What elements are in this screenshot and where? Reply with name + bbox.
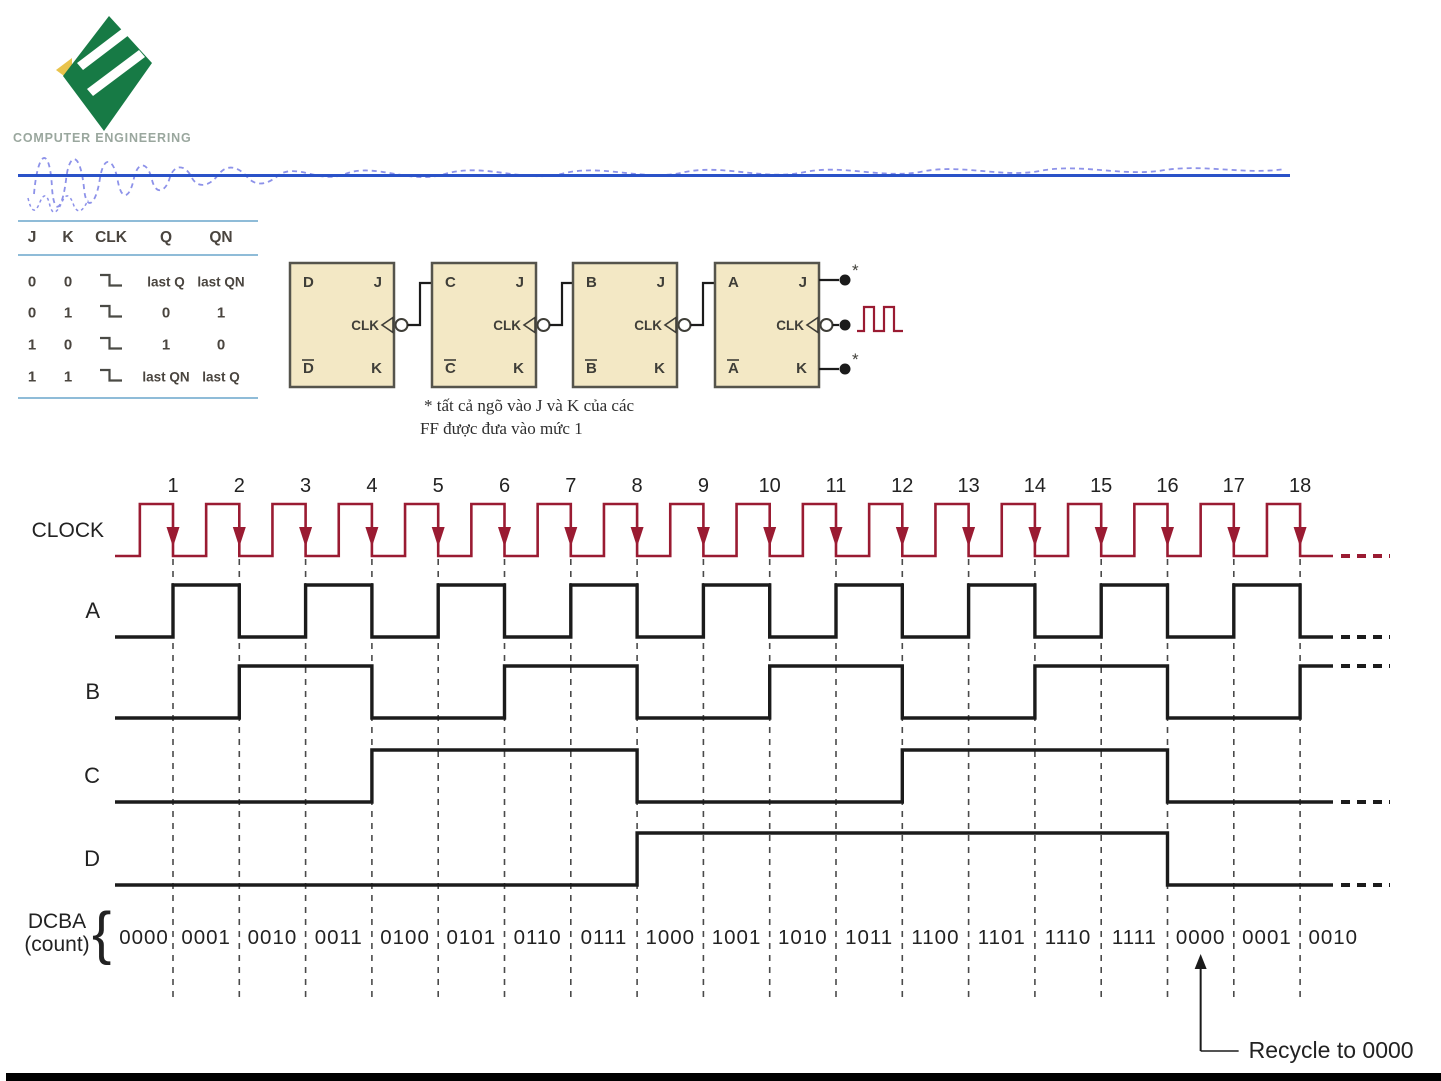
count-value: 0001	[181, 926, 231, 949]
count-value: 0011	[315, 926, 363, 949]
falling-edge-arrow-icon	[763, 527, 776, 547]
pulse-number: 10	[759, 475, 781, 497]
ff-j-label: J	[657, 274, 665, 291]
falling-edge-arrow-icon	[299, 527, 312, 547]
pulse-number: 13	[957, 475, 979, 497]
ff-j-label: J	[374, 274, 382, 291]
carry-wire	[408, 283, 433, 325]
k-tie-dot	[840, 364, 851, 375]
pulse-number: 11	[826, 475, 847, 497]
recycle-arrow-head-icon	[1195, 954, 1207, 969]
falling-edge-arrow-icon	[830, 527, 843, 547]
count-value: 1110	[1045, 926, 1092, 949]
falling-edge-arrow-icon	[1294, 527, 1307, 547]
falling-edge-arrow-icon	[365, 527, 378, 547]
count-value: 0100	[380, 926, 430, 949]
signal-waveform-b	[115, 666, 1333, 718]
clk-inversion-bubble-icon	[821, 319, 833, 331]
signal-waveform-d	[115, 833, 1333, 885]
pulse-number: 4	[366, 475, 377, 497]
clock-pulse-icon	[857, 307, 903, 331]
pulse-number: 5	[433, 475, 444, 497]
ff-k-label: K	[796, 360, 807, 377]
pulse-number: 9	[698, 475, 709, 497]
falling-edge-arrow-icon	[432, 527, 445, 547]
pulse-number: 18	[1289, 475, 1311, 497]
pulse-number: 1	[167, 475, 178, 497]
pulse-number: 8	[632, 475, 643, 497]
pulse-number: 16	[1156, 475, 1178, 497]
ff-output-bar-label: D	[303, 360, 314, 377]
ff-k-label: K	[654, 360, 665, 377]
ff-clk-label: CLK	[634, 318, 662, 333]
ff-output-bar-label: C	[445, 360, 456, 377]
carry-wire	[550, 283, 574, 325]
ff-output-label: A	[728, 274, 739, 291]
k-tie-asterisk: *	[852, 350, 859, 369]
timing-diagram: 123456789101112131415161718CLOCKABCD0000…	[24, 475, 1413, 1063]
count-value: 1010	[778, 926, 828, 949]
falling-edge-arrow-icon	[1227, 527, 1240, 547]
count-value: 0010	[1308, 926, 1358, 949]
count-value: 0111	[581, 926, 628, 949]
falling-edge-arrow-icon	[962, 527, 975, 547]
pulse-number: 14	[1024, 475, 1046, 497]
falling-edge-arrow-icon	[233, 527, 246, 547]
ff-output-label: D	[303, 274, 314, 291]
count-value: 0010	[248, 926, 298, 949]
ff-j-label: J	[799, 274, 807, 291]
ripple-counter-diagram: DJCLKDKCJCLKCKBJCLKBKAJCLKAK**1234567891…	[0, 0, 1441, 1081]
flipflop-a: AJCLKAK**	[715, 261, 903, 387]
count-value: 1101	[978, 926, 1026, 949]
footer-bar	[6, 1073, 1441, 1081]
carry-wire	[691, 283, 716, 325]
count-value: 1000	[645, 926, 695, 949]
ff-j-label: J	[516, 274, 524, 291]
falling-edge-arrow-icon	[697, 527, 710, 547]
signal-waveform-a	[115, 585, 1333, 637]
count-value: 0110	[514, 926, 562, 949]
count-value: 1001	[712, 926, 762, 949]
ff-clk-label: CLK	[776, 318, 804, 333]
flipflop-chain: DJCLKDKCJCLKCKBJCLKBKAJCLKAK**	[290, 261, 903, 387]
pulse-number: 17	[1223, 475, 1245, 497]
pulse-number: 6	[499, 475, 510, 497]
count-label-bottom: (count)	[24, 933, 89, 956]
pulse-number: 12	[891, 475, 913, 497]
j-tie-dot	[840, 275, 851, 286]
pulse-number: 15	[1090, 475, 1112, 497]
count-label-top: DCBA	[28, 910, 86, 933]
clock-row-label: CLOCK	[32, 519, 104, 542]
flipflop-c: CJCLKCK	[432, 263, 573, 387]
falling-edge-arrow-icon	[631, 527, 644, 547]
ff-k-label: K	[371, 360, 382, 377]
count-value: 1011	[845, 926, 893, 949]
count-value: 1111	[1112, 926, 1157, 949]
j-tie-asterisk: *	[852, 261, 859, 280]
falling-edge-arrow-icon	[564, 527, 577, 547]
count-value: 1100	[911, 926, 959, 949]
signal-row-label-c: C	[84, 763, 100, 788]
clock-waveform	[115, 504, 1333, 556]
page: COMPUTER ENGINEERING JKCLKQQN00last Qlas…	[0, 0, 1441, 1081]
count-value: 0101	[447, 926, 497, 949]
count-value: 0001	[1242, 926, 1292, 949]
ff-output-label: B	[586, 274, 597, 291]
falling-edge-arrow-icon	[498, 527, 511, 547]
ff-clk-label: CLK	[351, 318, 379, 333]
ff-output-bar-label: B	[586, 360, 597, 377]
pulse-number: 7	[565, 475, 576, 497]
clk-inversion-bubble-icon	[396, 319, 408, 331]
flipflop-b: BJCLKBK	[573, 263, 715, 387]
pulse-number: 2	[234, 475, 245, 497]
falling-edge-arrow-icon	[1095, 527, 1108, 547]
falling-edge-arrow-icon	[896, 527, 909, 547]
clock-input-dot	[840, 320, 851, 331]
ff-k-label: K	[513, 360, 524, 377]
recycle-label: Recycle to 0000	[1249, 1037, 1414, 1063]
signal-row-label-b: B	[85, 679, 100, 704]
circuit-note-line2: FF được đưa vào mức 1	[420, 419, 583, 439]
falling-edge-arrow-icon	[1028, 527, 1041, 547]
ff-output-bar-label: A	[728, 360, 739, 377]
flipflop-d: DJCLKDK	[290, 263, 432, 387]
falling-edge-arrow-icon	[167, 527, 180, 547]
signal-waveform-c	[115, 750, 1333, 802]
circuit-note-line1: * tất cả ngõ vào J và K của các	[424, 396, 634, 416]
signal-row-label-d: D	[84, 846, 100, 871]
count-value: 0000	[119, 926, 169, 949]
ff-output-label: C	[445, 274, 456, 291]
count-value: 0000	[1176, 926, 1226, 949]
signal-row-label-a: A	[85, 598, 100, 623]
ff-clk-label: CLK	[493, 318, 521, 333]
clk-inversion-bubble-icon	[538, 319, 550, 331]
clk-inversion-bubble-icon	[679, 319, 691, 331]
count-brace: {	[92, 901, 111, 966]
falling-edge-arrow-icon	[1161, 527, 1174, 547]
pulse-number: 3	[300, 475, 311, 497]
